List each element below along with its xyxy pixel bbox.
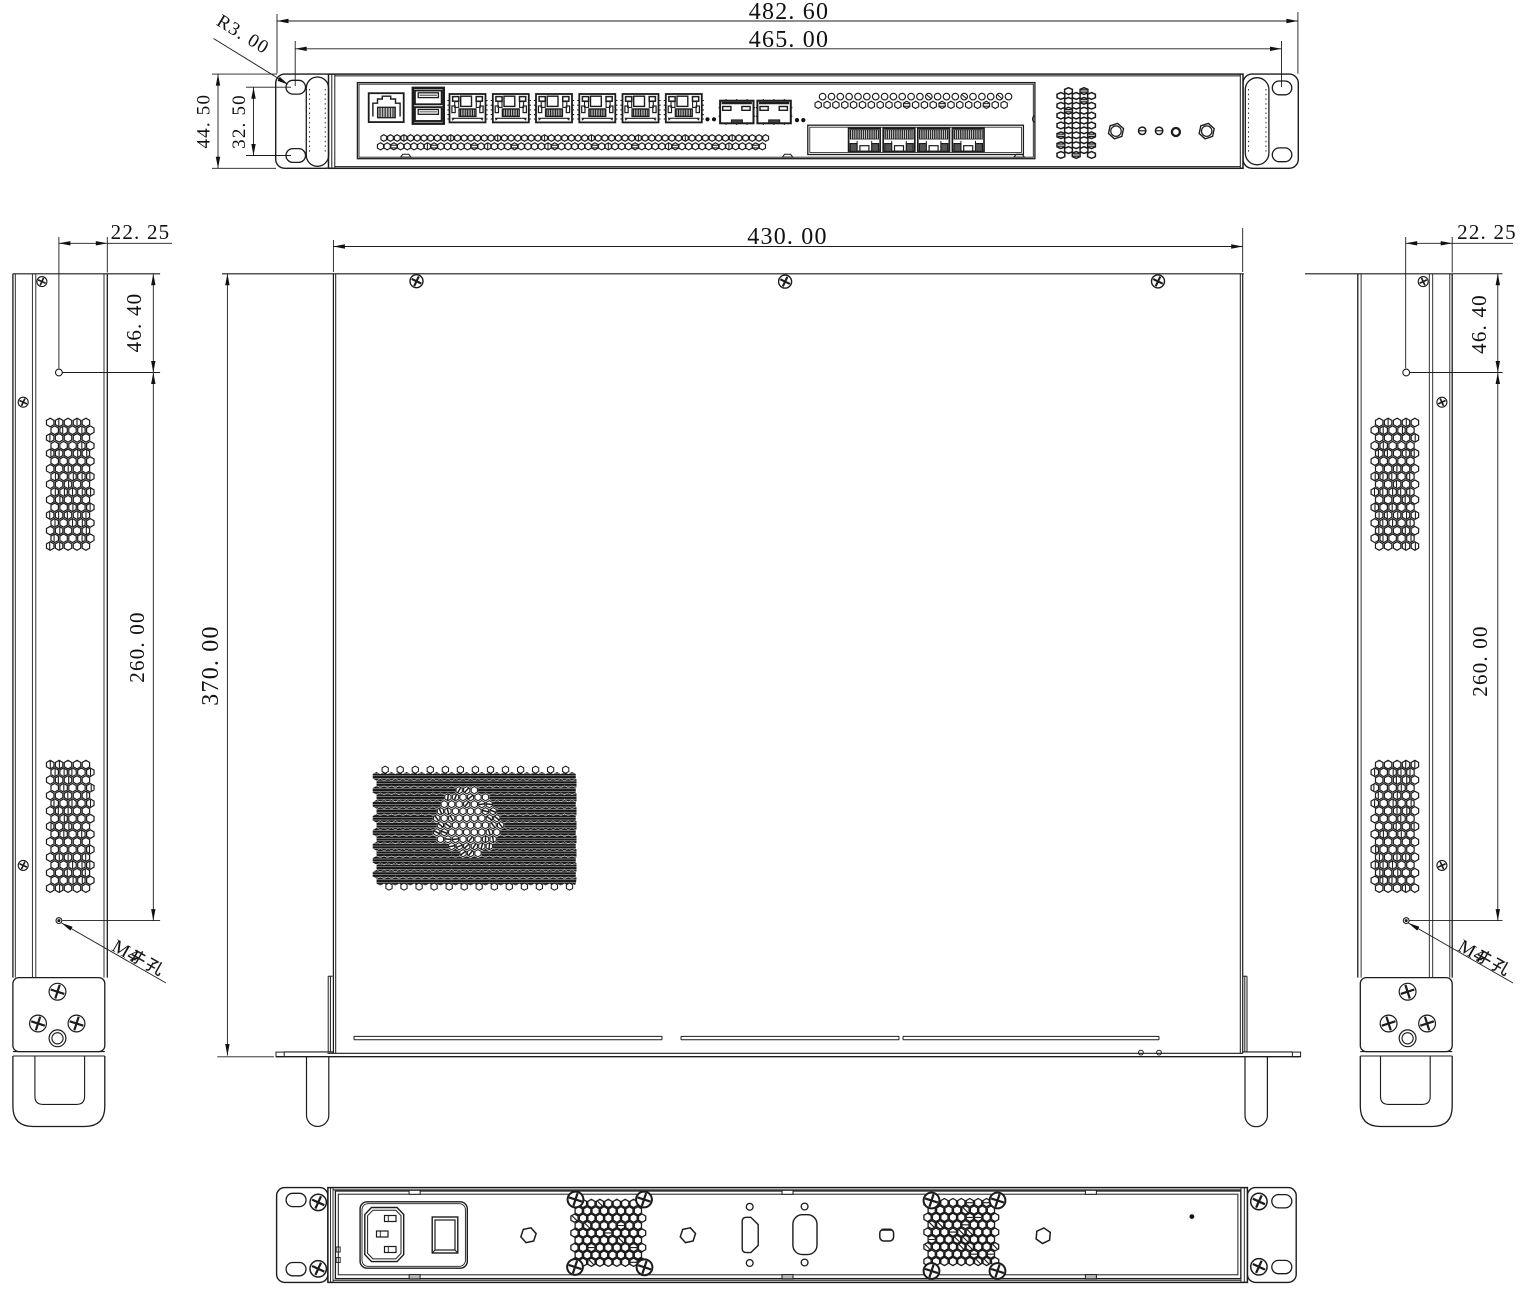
svg-text:260. 00: 260. 00	[1468, 625, 1492, 696]
svg-text:46. 40: 46. 40	[1467, 294, 1491, 354]
svg-text:465. 00: 465. 00	[749, 27, 829, 53]
svg-text:370. 00: 370. 00	[198, 625, 224, 705]
svg-text:430. 00: 430. 00	[747, 224, 827, 250]
svg-text:44. 50: 44. 50	[194, 94, 215, 149]
svg-text:46. 40: 46. 40	[122, 293, 146, 353]
svg-text:482. 60: 482. 60	[749, 0, 829, 25]
svg-text:22. 25: 22. 25	[111, 220, 171, 244]
svg-text:260. 00: 260. 00	[125, 611, 149, 682]
svg-text:22. 25: 22. 25	[1457, 220, 1517, 244]
svg-text:32. 50: 32. 50	[229, 94, 250, 149]
